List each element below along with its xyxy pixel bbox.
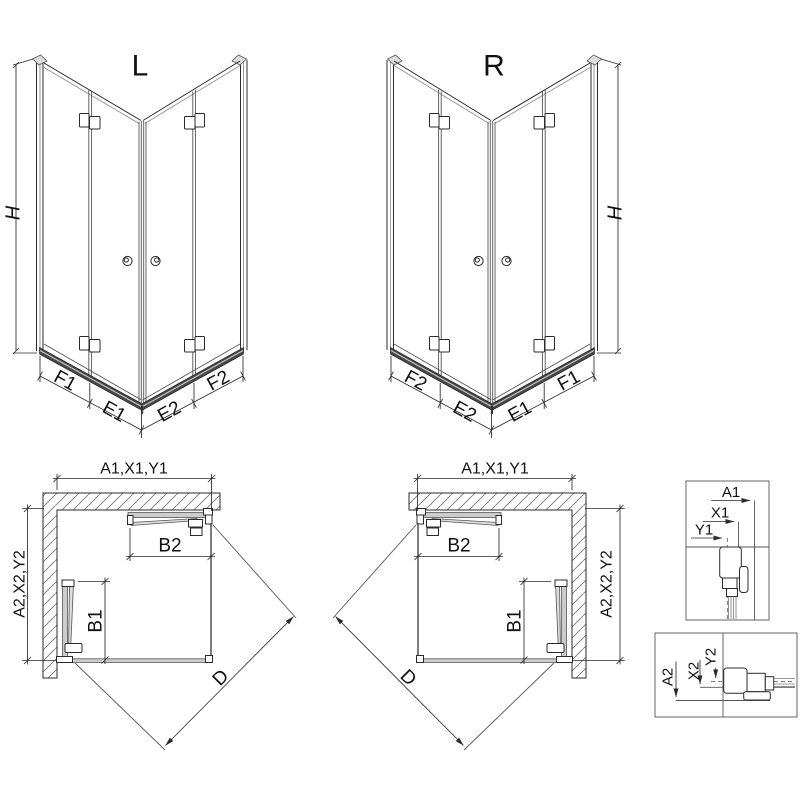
dim-label-a1x1y1: A1,X1,Y1 [100,461,168,478]
figure-right-label: R [483,50,505,83]
drawing-canvas: L [0,0,800,800]
top-rail-profile [128,513,211,518]
plan-view-right: A1,X1,Y1 A2,X2,Y2 B2 B1 D [333,461,625,751]
dim-label-e1: E1 [505,397,535,427]
detail-dim-a1: A1 [722,484,740,501]
plan-view-left: A1,X1,Y1 A2,X2,Y2 B2 B1 D [12,461,297,751]
wall-profile-section-vertical [720,547,748,619]
bottom-rail-profile [57,659,206,663]
wall-profile-section-horizontal [724,668,795,700]
technical-drawing: L [0,0,800,800]
top-folding-door [131,519,197,526]
bottom-rail-profile [423,659,572,663]
iso-view-right: R [387,50,627,439]
detail-box-depth-profile: A2 X2 Y2 [655,633,797,717]
wall-cap [388,55,403,65]
dim-label-a1x1y1: A1,X1,Y1 [461,461,529,478]
hinge-hardware [80,114,205,353]
detail-dim-x1: X1 [711,505,729,522]
iso-view-left: L [3,50,248,439]
dimension-b1-right-plan: B1 [505,578,552,665]
detail-dim-a2: A2 [660,668,677,686]
dim-label-h: H [605,205,627,220]
top-rail-profile [418,513,501,518]
dim-label-b1: B1 [86,609,107,632]
dimension-height-right: H [597,59,627,354]
dim-label-a2x2y2: A2,X2,Y2 [599,550,616,618]
dim-label-d: D [209,666,234,691]
dim-label-e1: E1 [99,397,129,427]
top-folding-door [432,519,498,526]
dim-label-e2: E2 [449,397,479,427]
hinge-hardware [430,114,555,353]
figure-left-label: L [132,50,149,83]
dim-label-b1: B1 [505,609,526,632]
detail-dim-y2: Y2 [703,648,720,666]
dim-label-h: H [3,205,25,220]
side-folding-door [556,583,561,652]
dimension-height-left: H [3,59,38,354]
dimension-d-right-plan: D [333,525,554,750]
dim-label-d: D [396,666,421,691]
detail-box-width-profile: A1 X1 Y1 [686,481,769,620]
dim-label-b2: B2 [158,536,181,557]
detail-dim-x2: X2 [686,662,703,680]
dimension-d-left-plan: D [75,525,296,750]
detail-dim-y1: Y1 [695,522,713,539]
dimension-b1-left-plan: B1 [78,578,110,665]
dim-label-e2: E2 [154,397,184,427]
dim-label-a2x2y2: A2,X2,Y2 [12,550,29,618]
dim-label-b2: B2 [447,536,470,557]
side-folding-door [69,583,74,652]
wall-cap [232,55,247,65]
